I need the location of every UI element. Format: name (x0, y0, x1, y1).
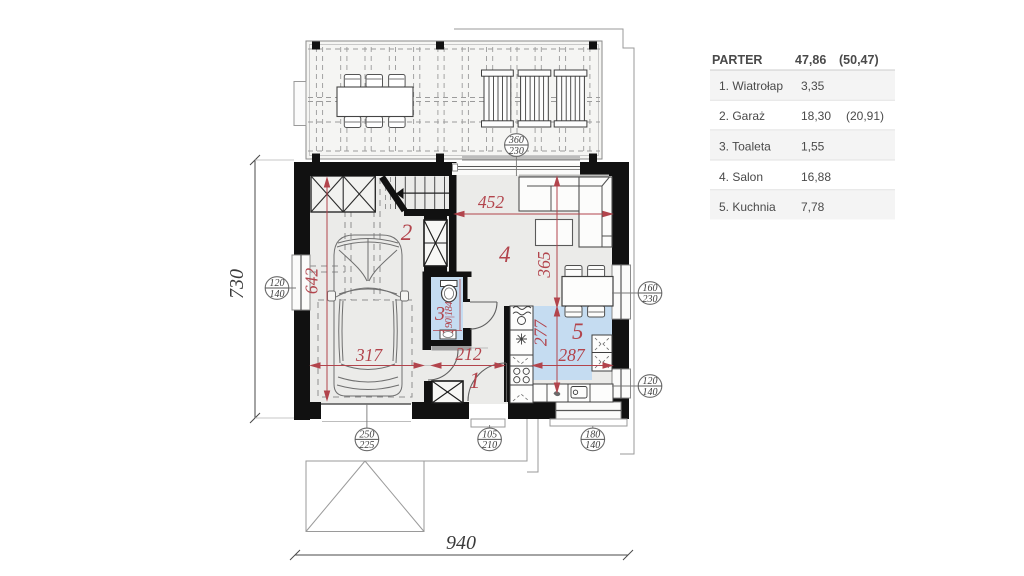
svg-text:160: 160 (643, 283, 658, 294)
svg-text:230: 230 (509, 146, 524, 157)
svg-text:18,30: 18,30 (801, 109, 831, 123)
svg-text:1. Wiatrołap: 1. Wiatrołap (719, 79, 783, 93)
svg-text:2. Garaż: 2. Garaż (719, 109, 765, 123)
svg-text:5: 5 (572, 319, 584, 344)
svg-text:105: 105 (482, 430, 497, 441)
svg-text:225: 225 (359, 440, 374, 451)
svg-text:1,55: 1,55 (801, 140, 825, 154)
svg-text:452: 452 (478, 192, 505, 212)
svg-text:4. Salon: 4. Salon (719, 170, 763, 184)
svg-text:3. Toaleta: 3. Toaleta (719, 140, 771, 154)
svg-text:140: 140 (585, 440, 600, 451)
svg-text:365: 365 (534, 251, 554, 279)
svg-text:120: 120 (270, 278, 285, 289)
svg-text:1: 1 (469, 368, 481, 393)
svg-text:360: 360 (508, 135, 524, 146)
svg-text:47,86: 47,86 (795, 53, 826, 67)
svg-text:317: 317 (355, 345, 384, 365)
svg-text:210: 210 (482, 440, 497, 451)
svg-text:4: 4 (499, 242, 511, 267)
svg-text:120: 120 (643, 376, 658, 387)
svg-text:140: 140 (643, 387, 658, 398)
svg-text:212: 212 (455, 344, 482, 364)
svg-text:90|184: 90|184 (444, 301, 455, 328)
svg-text:940: 940 (446, 532, 476, 554)
svg-text:5. Kuchnia: 5. Kuchnia (719, 200, 776, 214)
svg-text:7,78: 7,78 (801, 200, 825, 214)
svg-text:2: 2 (401, 220, 413, 245)
svg-text:730: 730 (226, 269, 248, 299)
svg-text:250: 250 (359, 430, 374, 441)
svg-text:(50,47): (50,47) (839, 53, 879, 67)
svg-text:(20,91): (20,91) (846, 109, 884, 123)
svg-text:287: 287 (558, 345, 586, 365)
svg-text:230: 230 (643, 294, 658, 305)
svg-text:180: 180 (585, 430, 600, 441)
svg-text:3: 3 (434, 303, 445, 325)
svg-text:3,35: 3,35 (801, 79, 825, 93)
svg-text:642: 642 (302, 268, 322, 295)
svg-text:16,88: 16,88 (801, 170, 831, 184)
svg-text:PARTER: PARTER (712, 53, 762, 67)
svg-text:277: 277 (531, 319, 551, 347)
svg-text:140: 140 (270, 289, 285, 300)
